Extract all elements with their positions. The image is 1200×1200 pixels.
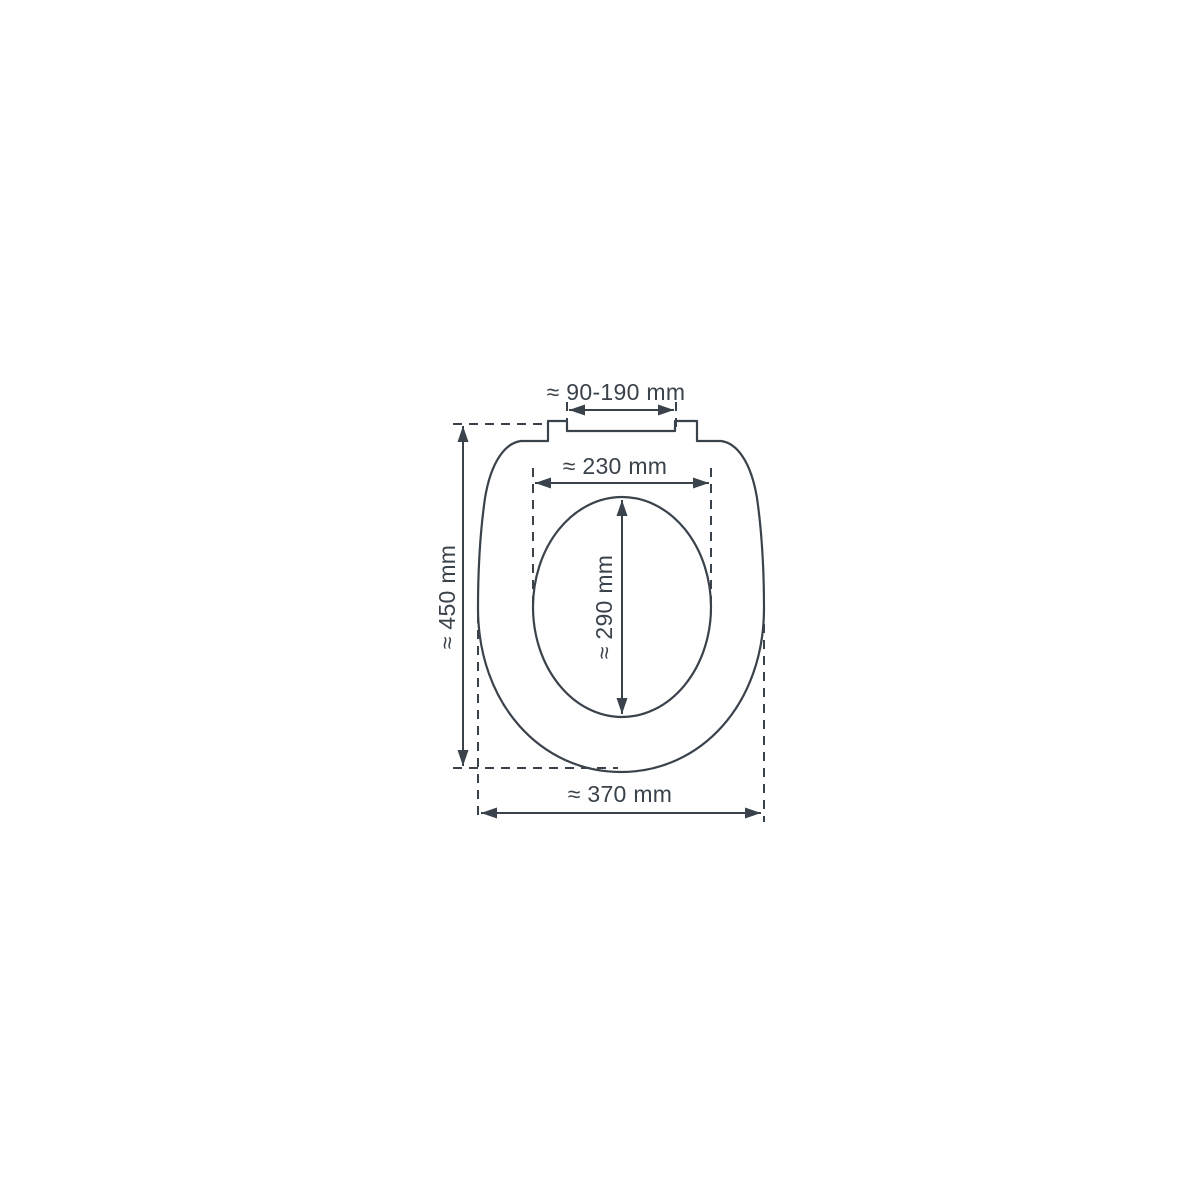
inner-length-dimension: ≈ 290 mm bbox=[591, 500, 622, 714]
toilet-seat-dimension-diagram: ≈ 90-190 mm ≈ 230 mm ≈ 450 mm ≈ 290 mm ≈… bbox=[0, 0, 1200, 1200]
inner-width-dimension: ≈ 230 mm bbox=[535, 453, 709, 483]
outer-width-dimension: ≈ 370 mm bbox=[481, 781, 761, 813]
hinge-span-label: ≈ 90-190 mm bbox=[547, 379, 686, 405]
inner-width-label: ≈ 230 mm bbox=[563, 453, 668, 479]
inner-length-label: ≈ 290 mm bbox=[591, 555, 617, 660]
outer-length-dimension: ≈ 450 mm bbox=[434, 426, 463, 766]
outer-width-label: ≈ 370 mm bbox=[568, 781, 673, 807]
outer-length-label: ≈ 450 mm bbox=[434, 545, 460, 650]
